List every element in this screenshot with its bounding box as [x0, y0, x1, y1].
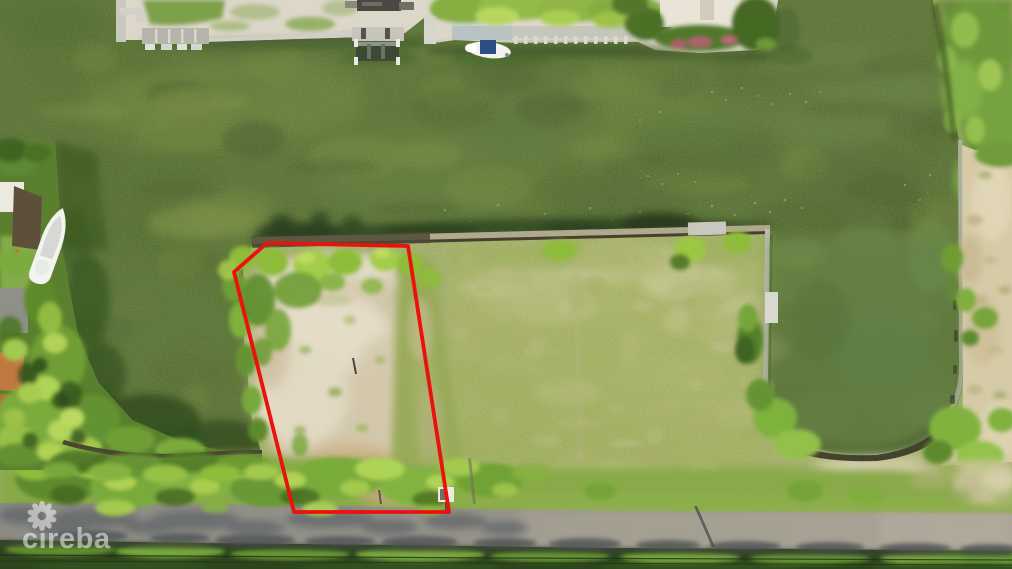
- svg-text:cireba: cireba: [22, 523, 111, 555]
